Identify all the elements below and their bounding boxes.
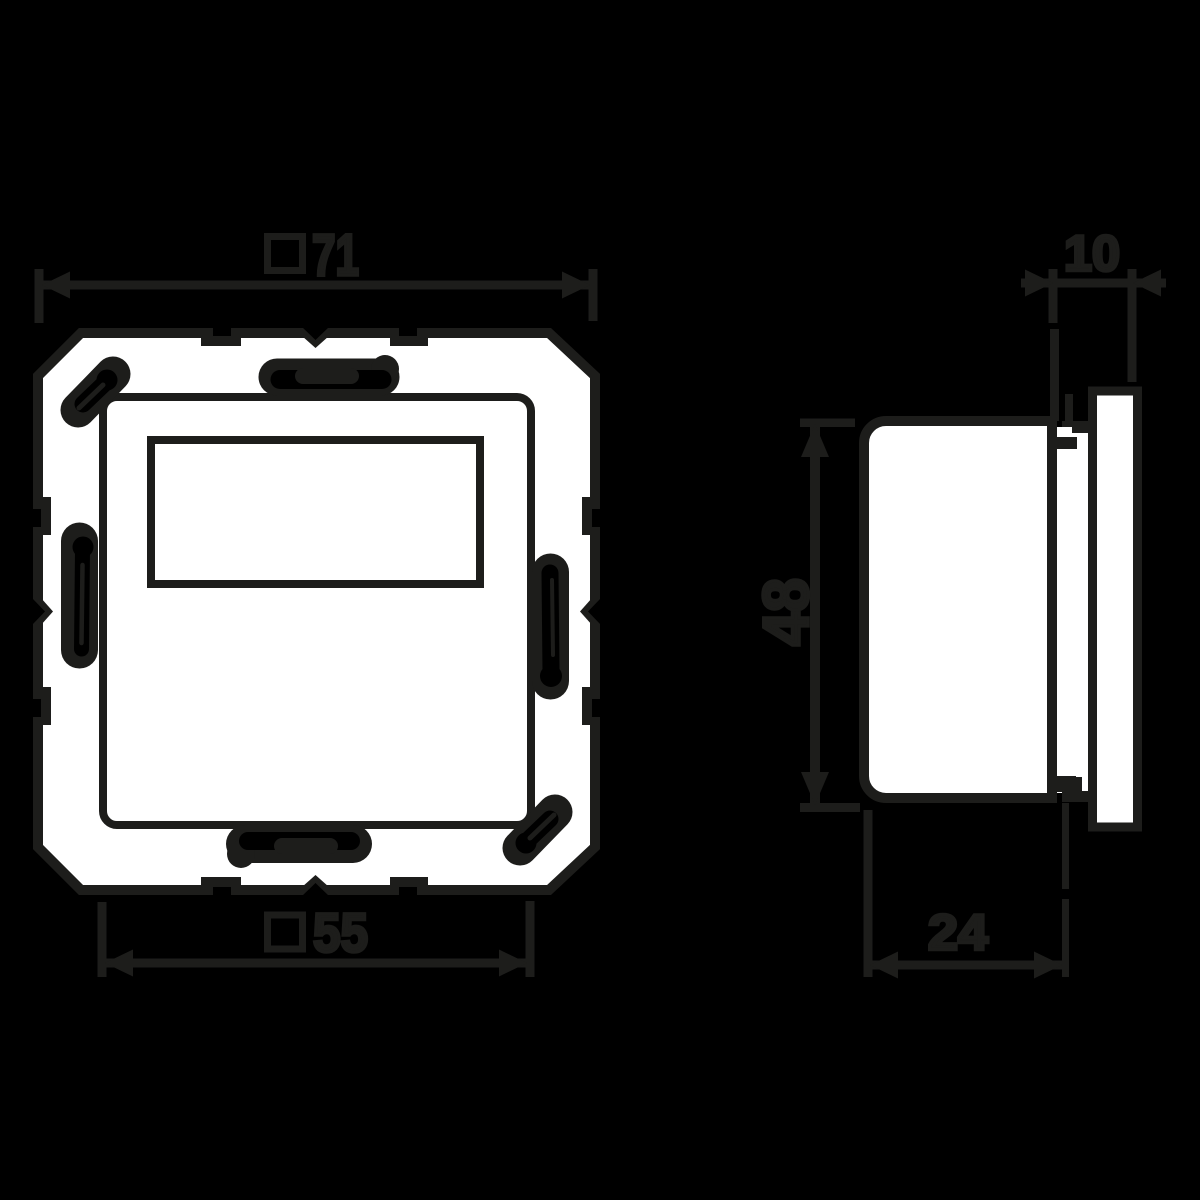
svg-text:55: 55 bbox=[313, 902, 368, 964]
svg-text:48: 48 bbox=[750, 578, 822, 646]
svg-text:71: 71 bbox=[312, 223, 359, 288]
svg-text:24: 24 bbox=[928, 905, 988, 961]
svg-text:10: 10 bbox=[1064, 226, 1120, 282]
